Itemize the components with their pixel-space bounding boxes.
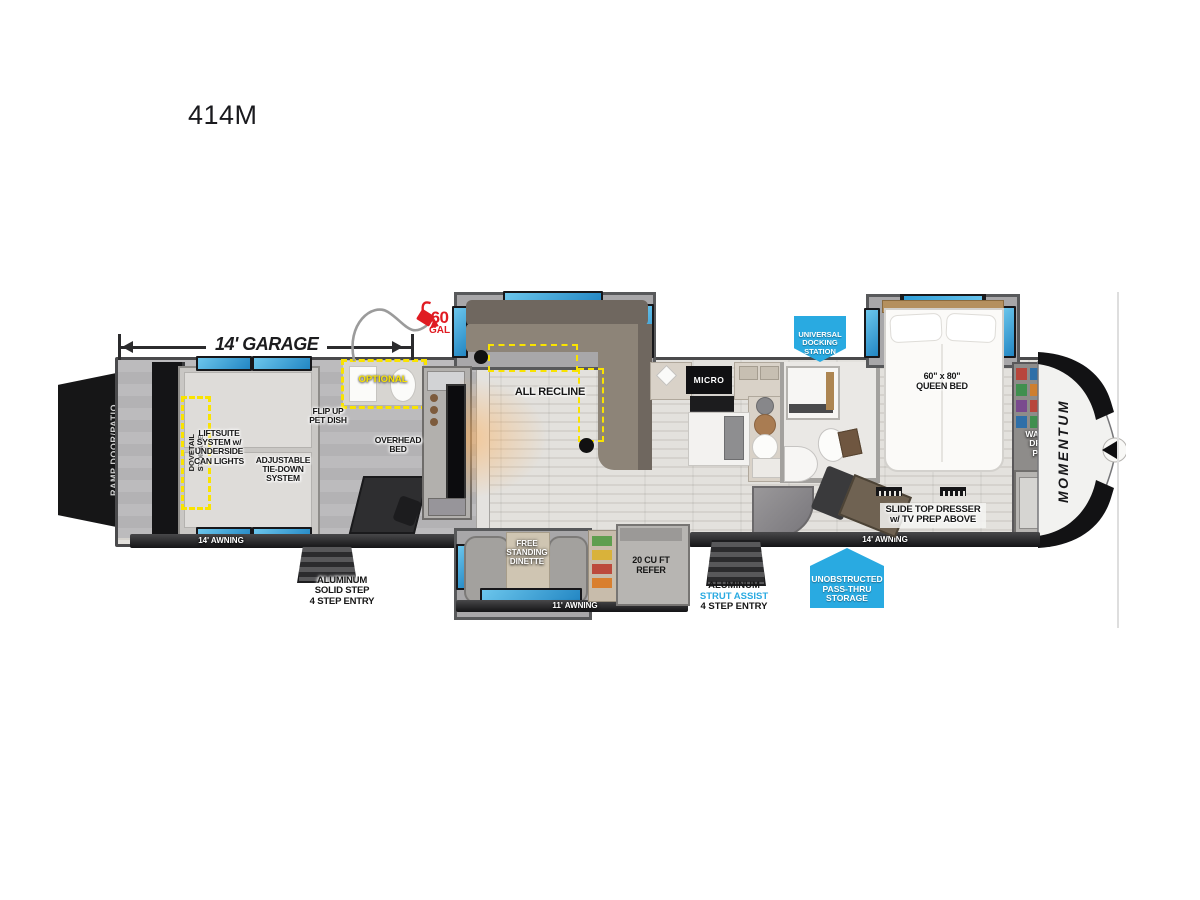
shower-trim: [826, 372, 834, 410]
tv: [446, 384, 466, 500]
bathroom-wall: [876, 362, 880, 482]
wardrobe-shelf-item: [1016, 416, 1027, 428]
microwave-label: MICRO: [694, 375, 725, 385]
brand-logo-text: MOMENTUM: [1055, 399, 1071, 503]
queen-bed-label: 60" x 80" QUEEN BED: [896, 372, 988, 391]
cabinet-knob: [430, 406, 438, 414]
microwave: MICRO: [686, 366, 732, 394]
control-panel: [428, 498, 466, 516]
floorplan-canvas: 414M RAMP DOOR/PATIO DOVETAIL STORAGE OP…: [0, 0, 1200, 900]
bed-seam: [941, 344, 943, 462]
tie-down-label: ADJUSTABLE TIE-DOWN SYSTEM: [248, 456, 318, 484]
overhead-bed-label: OVERHEAD BED: [370, 436, 426, 454]
stove: [690, 396, 734, 413]
refrigerator-label: 20 CU FT REFER: [618, 556, 684, 575]
liftsuite-label: LIFTSUITE SYSTEM w/ UNDERSIDE CAN LIGHTS: [182, 429, 256, 466]
docking-station-badge: UNIVERSAL DOCKING STATION: [794, 316, 846, 362]
awning-dinette-label: 11' AWNING: [530, 602, 620, 611]
awning-garage-label: 14' AWNING: [176, 537, 266, 546]
bed-pillow: [945, 313, 996, 344]
optional-recliner-zone: [578, 368, 604, 442]
brand-logo: MOMENTUM: [1052, 388, 1074, 514]
utensil-tray: [752, 458, 782, 478]
vent-icon: [940, 487, 966, 496]
bedroom-window: [864, 308, 880, 358]
cup-table: [579, 438, 594, 453]
bed-pillow: [889, 313, 942, 344]
front-cap: [1036, 350, 1126, 550]
vent-icon: [876, 487, 902, 496]
pantry-item: [592, 564, 612, 574]
pass-thru-badge: UNOBSTRUCTED PASS-THRU STORAGE: [810, 548, 884, 608]
garage-window: [196, 356, 252, 371]
main-step-line3: 4 STEP ENTRY: [690, 602, 778, 613]
page-title: 414M: [188, 100, 258, 131]
dimension-arrowhead-left: [122, 341, 133, 353]
pantry-item: [592, 578, 612, 588]
pantry-item: [592, 536, 612, 546]
dresser-label: SLIDE TOP DRESSER w/ TV PREP ABOVE: [880, 503, 986, 528]
refrigerator-top: [620, 528, 682, 541]
wardrobe-shelf-item: [1016, 400, 1027, 412]
optional-recliner-zone: [488, 344, 578, 372]
fireplace-glow: [460, 376, 548, 500]
sofa-back: [466, 300, 648, 326]
dinner-plate: [752, 434, 778, 460]
pantry-item: [592, 550, 612, 560]
garage-window: [252, 356, 312, 371]
kitchen-sink-round: [756, 397, 774, 415]
sofa-chaise-seat: [598, 324, 638, 470]
garage-step-label: ALUMINUM SOLID STEP 4 STEP ENTRY: [296, 576, 388, 607]
wardrobe-shelf-item: [1016, 384, 1027, 396]
image-edge-line: [1117, 292, 1119, 628]
spice-tray: [739, 366, 758, 380]
awning-main-label: 14' AWNING: [840, 536, 930, 545]
garage-dimension-label: 14' GARAGE: [206, 334, 327, 355]
main-step-label: ALUMINUM STRUT ASSIST 4 STEP ENTRY: [690, 581, 778, 613]
pet-dish-label: FLIP UP PET DISH: [298, 407, 358, 425]
dinette-label: FREE STANDING DINETTE: [500, 540, 554, 566]
pass-thru-label: UNOBSTRUCTED PASS-THRU STORAGE: [811, 574, 882, 604]
cup-table: [474, 350, 488, 364]
island-sink: [724, 416, 744, 460]
fuel-value: 60: [429, 310, 450, 326]
cutting-board: [754, 414, 776, 436]
cabinet-knob: [430, 394, 438, 402]
fuel-capacity-label: 60 GAL: [429, 310, 450, 336]
wardrobe-shelf-item: [1016, 368, 1027, 380]
docking-station-label: UNIVERSAL DOCKING STATION: [798, 330, 841, 356]
cabinet-knob: [430, 418, 438, 426]
fuel-unit: GAL: [429, 326, 450, 336]
spice-tray: [760, 366, 779, 380]
optional-bath-label: OPTIONAL: [343, 374, 423, 385]
